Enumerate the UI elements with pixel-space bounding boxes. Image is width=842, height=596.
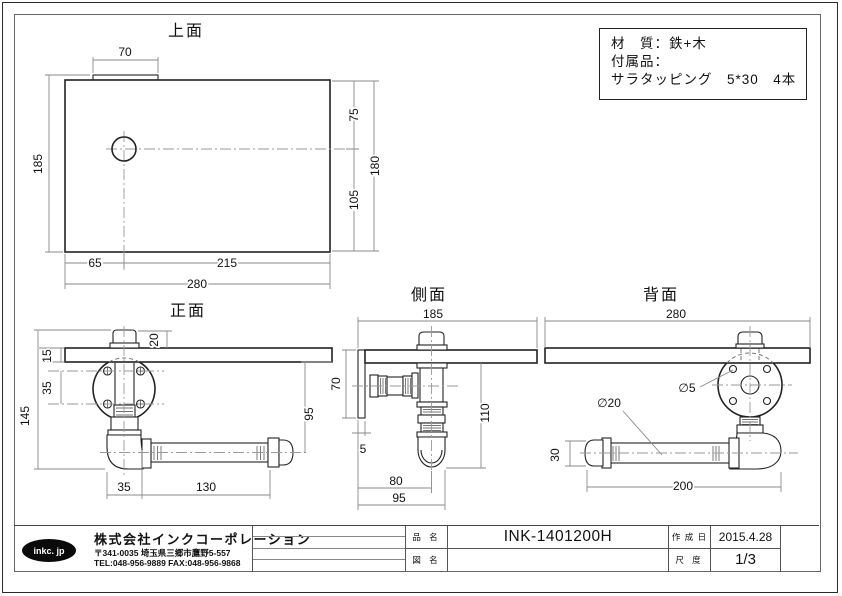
revision-row [253,560,405,571]
part-number: INK-1401200H [448,526,668,549]
dim-280-back: 280 [666,307,686,321]
name-label-cell: 品 名 図 名 [405,526,447,571]
revision-row [253,549,405,560]
dim-35: 35 [40,381,54,395]
date-scale-label-cell: 作 成 日 尺 度 [668,526,710,571]
view-front: 正面 20 15 35 145 95 35 130 [18,303,332,499]
scale-value: 1/3 [711,549,780,572]
dim-180: 180 [368,156,382,176]
dim-145: 145 [18,406,32,426]
dim-200: 200 [673,479,693,493]
date-value: 2015.4.28 [711,526,780,549]
revision-row [253,537,405,548]
company-cell: inkc. jp 株式会社インクコーポレーション 〒341-0035 埼玉県三郷… [14,526,252,571]
dim-75: 75 [347,108,361,122]
dim-80: 80 [389,474,403,488]
drawing-canvas: 上面 70 185 75 105 180 65 215 280 [0,0,842,596]
drawing-sheet: 材 質：鉄+木 付属品： サラタッピング 5*30 4本 上面 70 185 7… [0,0,842,596]
dim-110: 110 [478,403,492,422]
view-top: 上面 70 185 75 105 180 65 215 280 [31,22,382,291]
dim-70: 70 [118,45,132,59]
date-label: 作 成 日 [669,526,710,549]
dim-dia20: ∅20 [597,396,621,410]
dim-dia5: ∅5 [678,381,695,395]
empty-cell [780,526,819,571]
dim-5: 5 [360,442,367,456]
dim-65: 65 [88,256,102,270]
name-value-cell: INK-1401200H [447,526,668,571]
dim-280: 280 [187,277,207,291]
view-title-front: 正面 [170,303,206,320]
dim-105: 105 [347,190,361,210]
view-side: 側面 185 70 5 110 80 95 [329,286,537,510]
dim-185-side: 185 [423,307,443,321]
dim-20: 20 [147,333,161,347]
dim-70-side: 70 [329,377,343,391]
revision-rows [252,526,405,571]
company-logo: inkc. jp [22,539,76,562]
date-scale-value-cell: 2015.4.28 1/3 [710,526,780,571]
revision-row [253,526,405,537]
title-block: inkc. jp 株式会社インクコーポレーション 〒341-0035 埼玉県三郷… [14,525,819,570]
view-title-side: 側面 [411,286,447,304]
company-tel: TEL:048-956-9889 FAX:048-956-9868 [94,558,240,568]
scale-label: 尺 度 [669,549,710,572]
view-back: 背面 280 ∅5 ∅20 30 200 [545,286,810,493]
dim-15: 15 [40,349,54,363]
dim-30: 30 [548,448,562,462]
view-title-back: 背面 [643,286,679,304]
dim-35b: 35 [117,480,131,494]
dim-130: 130 [196,480,216,494]
part-name-label: 品 名 [406,526,447,549]
dim-95-side: 95 [392,491,406,505]
drawing-name-label: 図 名 [406,549,447,572]
drawing-name-value [448,549,668,572]
view-title-top: 上面 [168,22,204,40]
dim-95: 95 [302,407,316,421]
dim-185: 185 [31,154,45,174]
dim-215: 215 [217,256,237,270]
